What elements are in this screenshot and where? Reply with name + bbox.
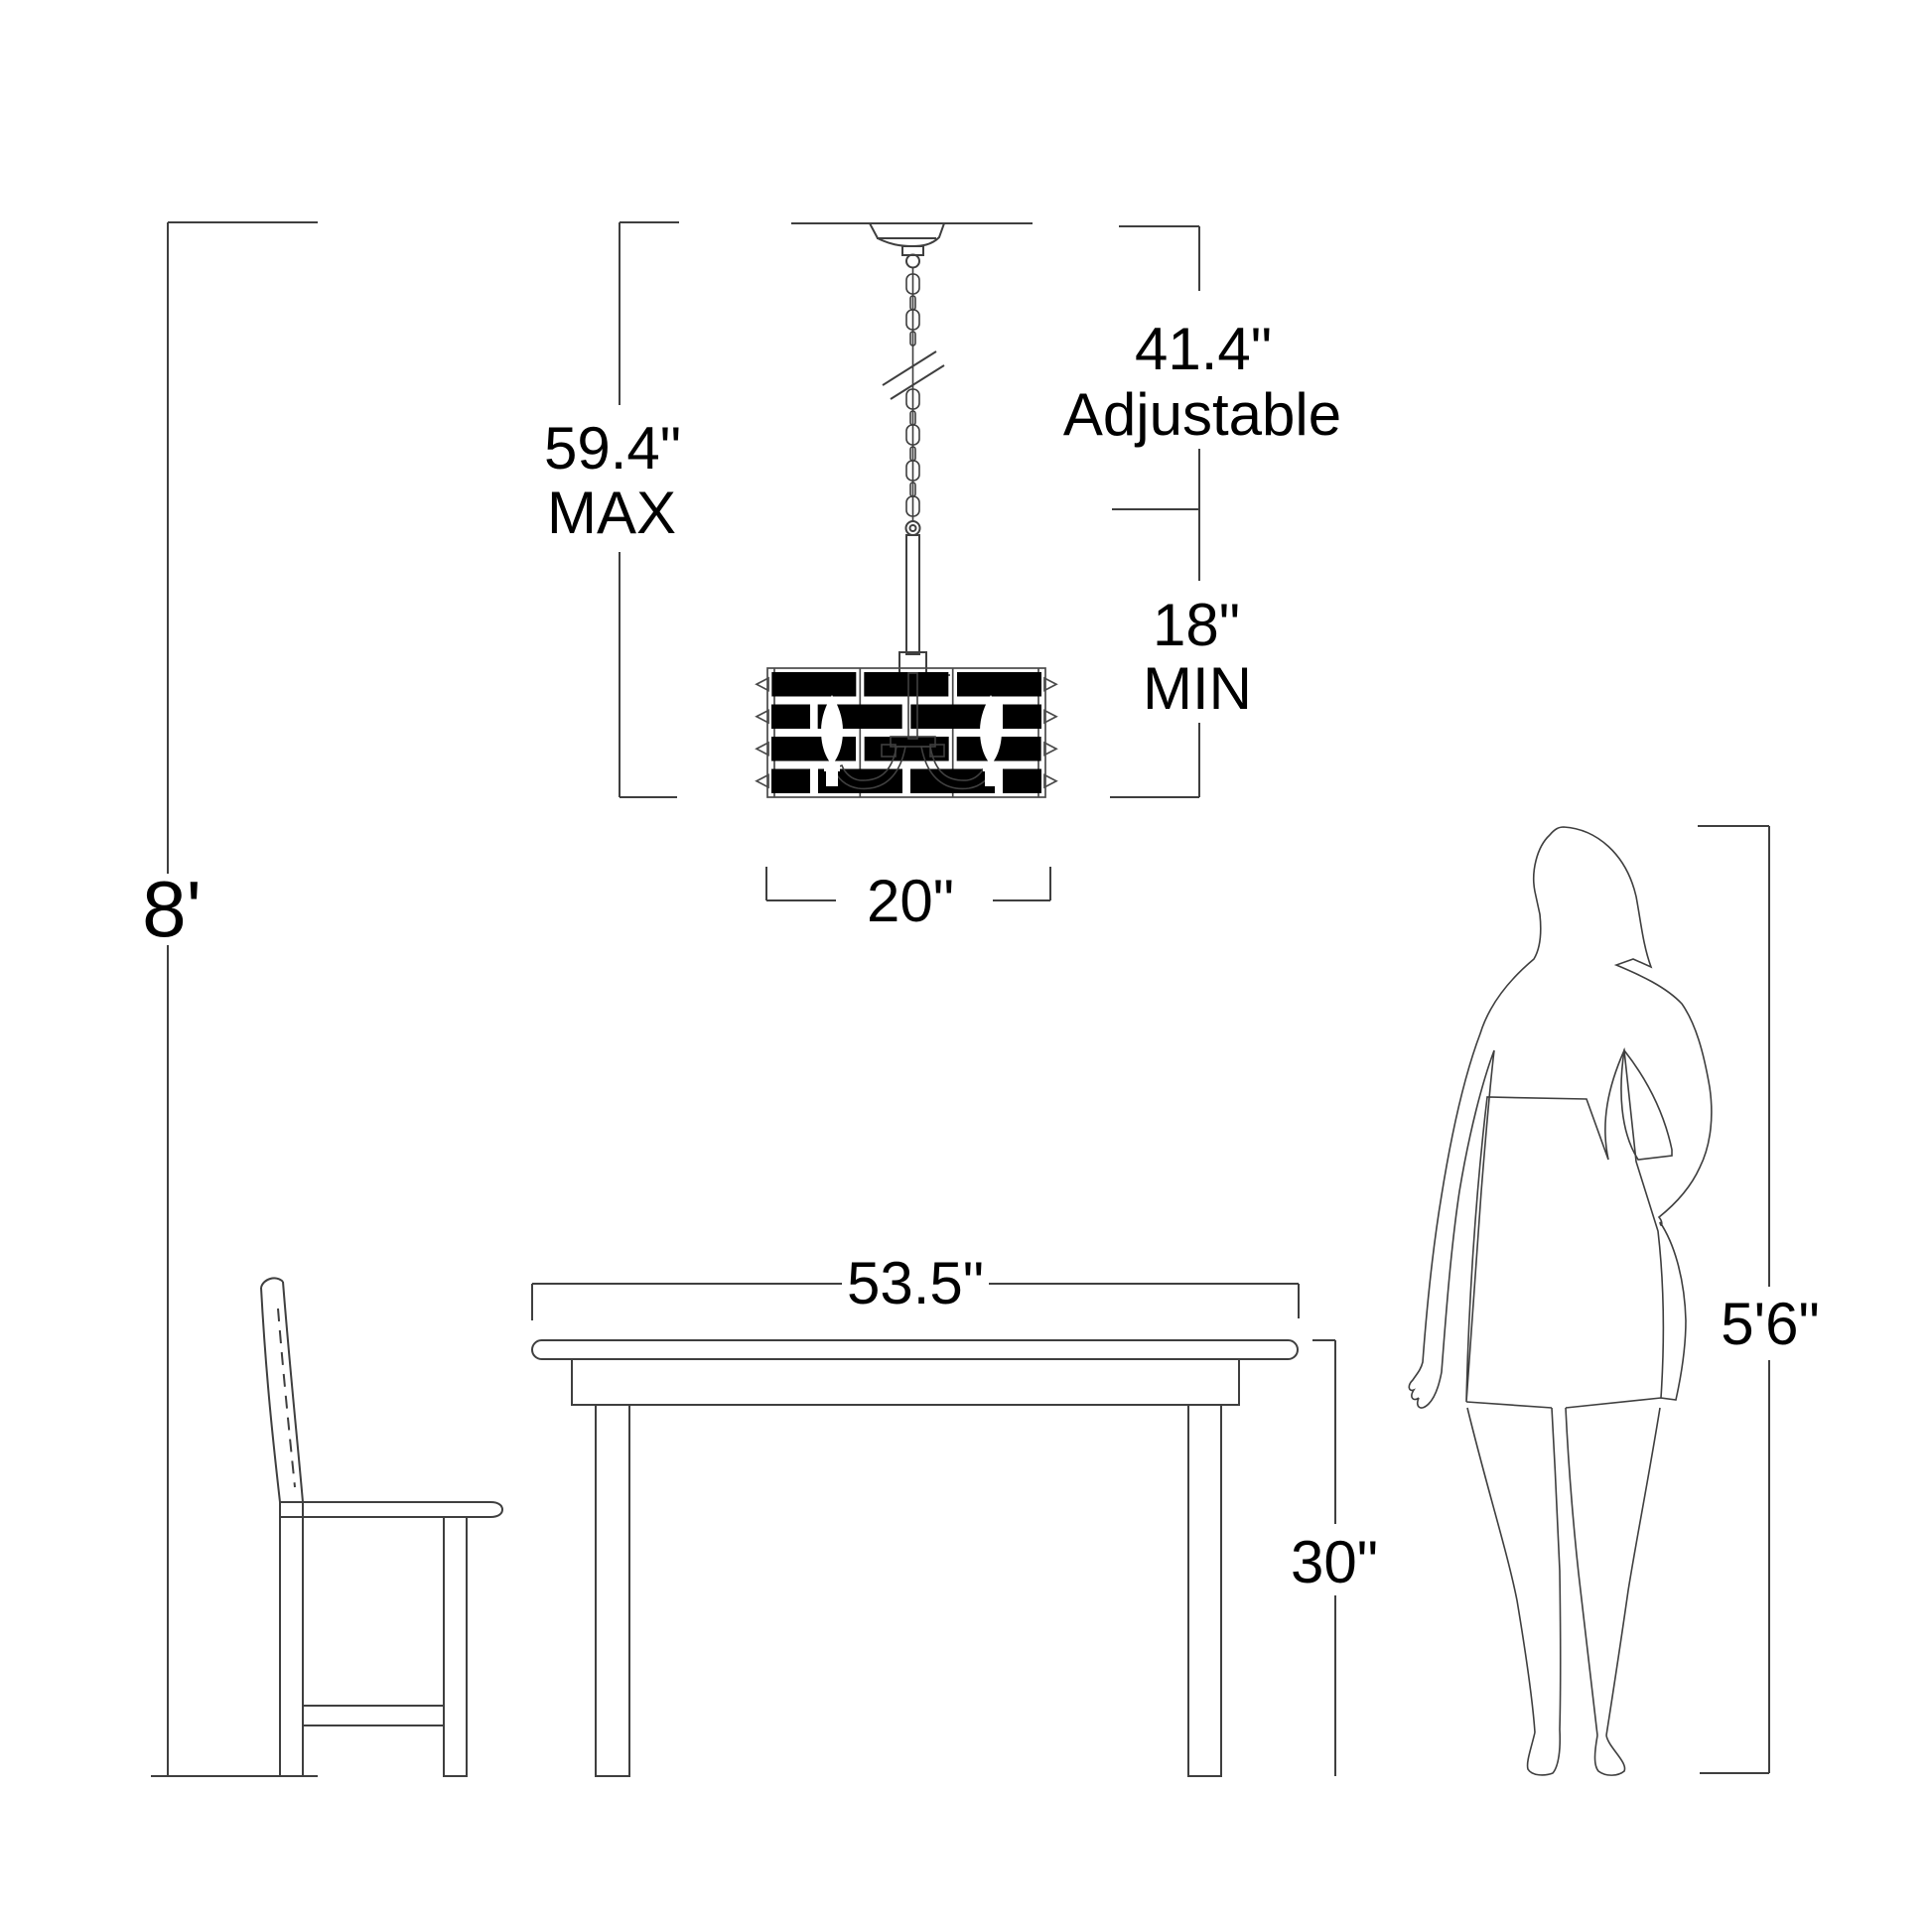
chandelier-downrod bbox=[906, 535, 919, 654]
chandelier-drawing bbox=[757, 223, 1056, 797]
dimension-label-fixture-max-qualifier: MAX bbox=[547, 480, 676, 546]
person-leg-left-outer bbox=[1467, 1408, 1535, 1732]
dimension-label-fixture-max-value: 59.4" bbox=[544, 415, 681, 482]
chandelier-shade bbox=[757, 668, 1056, 797]
person-arm-gap bbox=[1621, 1050, 1672, 1160]
dimension-diagram: 8' 59.4" MAX 41.4" Adjustable 18" MIN bbox=[0, 0, 1932, 1932]
person-silhouette bbox=[1409, 827, 1712, 1775]
dimension-min bbox=[1110, 723, 1199, 797]
dimension-label-min-value: 18" bbox=[1153, 592, 1240, 658]
person-leg-right-inner bbox=[1566, 1408, 1597, 1735]
table-top bbox=[532, 1340, 1298, 1359]
table-drawing bbox=[532, 1340, 1298, 1776]
person-leg-left-inner bbox=[1552, 1408, 1561, 1729]
chair-back-inner bbox=[283, 1282, 303, 1776]
chair-seat bbox=[280, 1502, 502, 1517]
table-leg-right bbox=[1188, 1405, 1221, 1776]
person-outline bbox=[1409, 827, 1712, 1408]
dimension-label-shade-width: 20" bbox=[867, 868, 954, 934]
table-leg-left bbox=[596, 1405, 629, 1776]
person-leg-right-outer bbox=[1606, 1408, 1660, 1735]
dimension-label-ceiling-height: 8' bbox=[142, 865, 202, 953]
dimension-label-min-qualifier: MIN bbox=[1143, 655, 1252, 722]
dimension-label-table-width: 53.5" bbox=[847, 1250, 984, 1316]
chair-drawing bbox=[261, 1278, 502, 1776]
chair-front-leg bbox=[444, 1517, 467, 1776]
dimension-label-adjustable-qualifier: Adjustable bbox=[1063, 381, 1341, 448]
dimension-label-person-height: 5'6" bbox=[1721, 1291, 1820, 1357]
chandelier-canopy bbox=[870, 223, 944, 246]
dimension-ceiling-height bbox=[151, 222, 318, 1776]
person-foot-left bbox=[1528, 1729, 1561, 1775]
table-apron bbox=[572, 1359, 1239, 1405]
diagram-canvas: 8' 59.4" MAX 41.4" Adjustable 18" MIN bbox=[0, 0, 1932, 1932]
chair-back-outer bbox=[261, 1288, 280, 1776]
person-foot-right bbox=[1595, 1735, 1625, 1775]
dimension-label-adjustable-value: 41.4" bbox=[1135, 316, 1272, 382]
dimension-label-table-height: 30" bbox=[1291, 1529, 1378, 1595]
chair-stretcher bbox=[303, 1706, 444, 1725]
